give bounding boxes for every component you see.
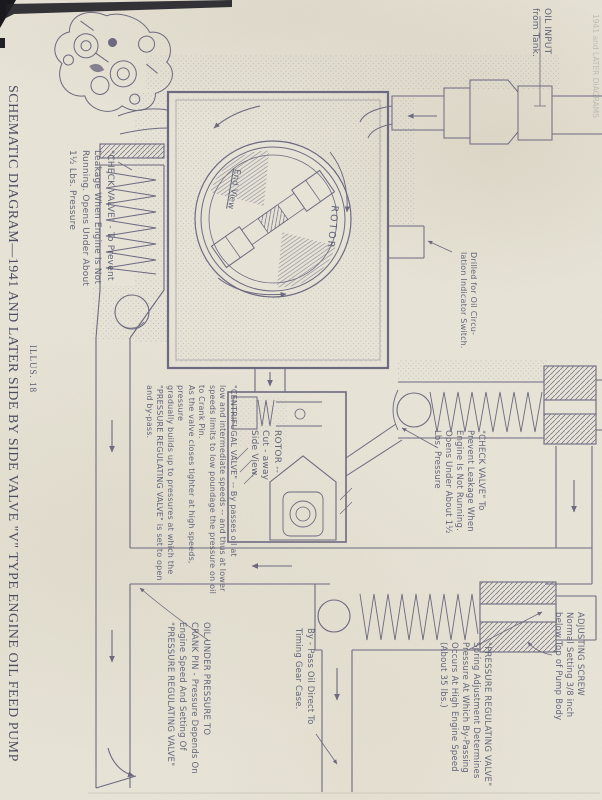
label-centrifugal-valve: "CENTRIFUGAL VALVE" -- By passes oil at … [154, 385, 238, 601]
label-oil-under-pressure: OIL UNDER PRESSURE TO CRANK PIN - Pressu… [164, 622, 212, 797]
label-check-valve-left: "CHECK VALVE" - To Prevent Leakage When … [66, 150, 116, 332]
label-rotor-side-view: ROTOR -- Cut - away Side View. [249, 430, 282, 500]
scanned-schematic-page: OIL INPUT from Tank. "CHECK VALVE" - To … [0, 0, 602, 800]
label-pressure-regulating: "PRESSURE REGULATING VALVE" Spring Adjus… [437, 642, 492, 800]
page-title: SCHEMATIC DIAGRAM—1941 AND LATER SIDE BY… [0, 85, 20, 800]
label-bypass: By - Pass Oil Direct To Timing Gear Case… [292, 628, 316, 748]
label-adjusting-screw: ADJUSTING SCREW Normal Setting 3/8 inch … [552, 612, 585, 786]
label-drilled-switch: Drilled for Oil Circu- lation Indicator … [456, 252, 478, 358]
label-oil-input: OIL INPUT from Tank. [528, 8, 552, 80]
edge-note: 1941 and LATER DIAGRAMS [588, 14, 600, 154]
label-check-valve-right: "CHECK VALVE" To Prevent Leakage When En… [431, 430, 486, 548]
illustration-number: ILLUS. 18 [24, 345, 38, 405]
